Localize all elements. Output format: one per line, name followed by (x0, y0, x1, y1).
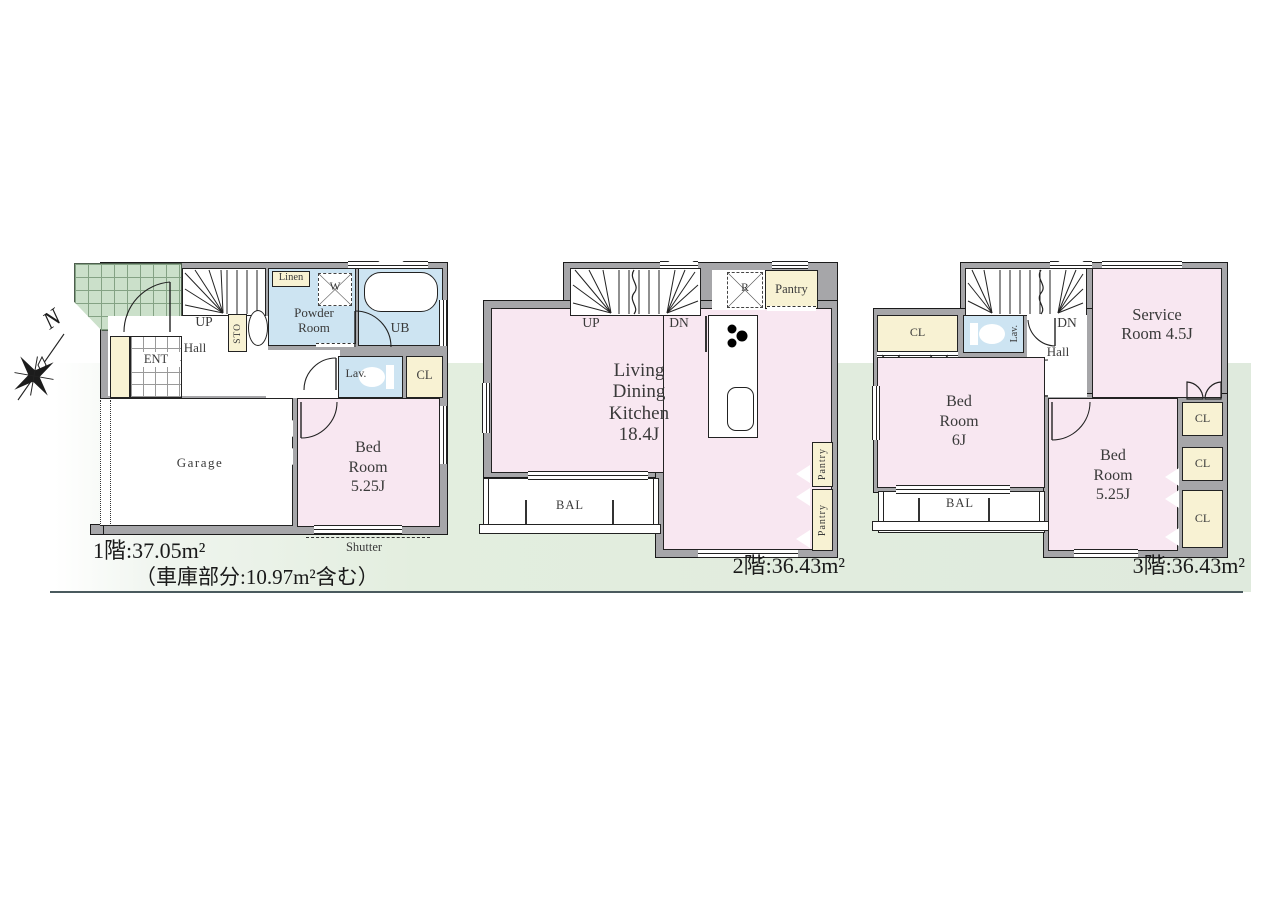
label-service-room: Service Room 4.5J (1114, 306, 1200, 344)
label-dn-f2: DN (663, 315, 695, 331)
double-casement-icon (1184, 374, 1224, 400)
bifold-door-icon (1163, 466, 1181, 488)
label-up-f2: UP (575, 315, 607, 331)
label-refrigerator: R (727, 282, 763, 296)
label-bal-f3: BAL (930, 496, 990, 511)
vent-triangle-icon (278, 446, 295, 467)
label-cl-f1: CL (406, 368, 443, 383)
window (439, 406, 447, 464)
label-sto-text: STO (233, 323, 243, 344)
label-pantry-side-lower: Pantry (817, 504, 828, 536)
kitchen-sink-icon (727, 387, 754, 431)
balcony-divider (612, 500, 614, 524)
label-cl2-f3: CL (1182, 456, 1223, 470)
label-bedroom-525j: Bed Room 5.25J (1087, 446, 1139, 505)
vent-hood-icon (666, 251, 696, 264)
label-washer: W (318, 281, 352, 295)
window (1102, 261, 1182, 269)
label-bal-f2: BAL (540, 498, 600, 513)
window (896, 485, 1010, 494)
vent-hood-icon (776, 249, 806, 262)
vent-triangle-icon (278, 418, 295, 439)
site-baseline (50, 591, 1243, 593)
label-pantry-side-lower-box: Pantry (812, 489, 833, 551)
label-pantry-top: Pantry (765, 282, 818, 297)
balcony-divider (525, 500, 527, 524)
label-up-f1: UP (188, 314, 220, 330)
label-bedroom-6j: Bed Room 6J (933, 392, 985, 451)
label-hall-f1: Hall (174, 340, 216, 356)
garage-door-dotted-line (110, 400, 112, 524)
stairs-icon (571, 269, 700, 315)
label-lav-f1: Lav. (339, 366, 373, 380)
toilet-icon-f3 (968, 320, 1008, 348)
stairs-icon (966, 269, 1086, 315)
vent-hood-icon (1056, 251, 1086, 264)
balcony-f2-parapet (479, 524, 661, 534)
ub-door-arc-icon (352, 308, 394, 348)
window (314, 525, 402, 534)
shoe-cabinet (110, 336, 130, 398)
hall-door-arc-icon (1028, 316, 1058, 350)
lav-door-arc-icon (304, 356, 338, 392)
bifold-door-icon (794, 528, 812, 550)
floor3-caption: 3階:36.43m² (1040, 553, 1245, 579)
entrance-door-arc-icon (118, 276, 180, 334)
label-lav-f3: Lav. (1009, 325, 1020, 342)
label-ldk: Living Dining Kitchen 18.4J (593, 360, 685, 446)
label-pantry-side-upper-box: Pantry (812, 442, 833, 487)
label-ent: ENT (132, 352, 180, 367)
balcony-divider (918, 498, 920, 521)
label-bedroom-f1: Bed Room 5.25J (342, 438, 394, 497)
vent-hood-icon (376, 251, 406, 264)
window (439, 300, 447, 346)
stairs-icon (183, 269, 265, 315)
window (772, 261, 808, 269)
label-linen: Linen (272, 272, 310, 285)
garage-door-dotted-line (100, 400, 102, 524)
floor1-caption-line1: 1階:37.05m² (93, 538, 433, 564)
bifold-door-icon (794, 463, 812, 485)
window (528, 471, 648, 480)
label-powder-room: Powder Room (282, 305, 346, 336)
stove-icon (723, 320, 753, 352)
washbasin-icon (248, 310, 268, 346)
pantry-sliding-door (767, 306, 816, 311)
label-cl3-f3: CL (1182, 511, 1223, 525)
label-pantry-side-upper: Pantry (817, 448, 828, 480)
compass-n-label: N (37, 303, 67, 335)
kitchen-halfwall (705, 316, 707, 352)
window (872, 386, 880, 440)
floor1-caption-line2: （車庫部分:10.97m²含む） (93, 564, 433, 590)
window (482, 383, 490, 433)
bedroom-door-arc-icon (299, 400, 337, 440)
floor1-caption: 1階:37.05m² （車庫部分:10.97m²含む） (93, 538, 433, 590)
bifold-door-icon (1163, 488, 1181, 510)
label-lav-f3-box: Lav. (1006, 317, 1022, 351)
bifold-door-icon (794, 486, 812, 508)
label-sto: STO (228, 314, 247, 352)
floor2-caption: 2階:36.43m² (640, 553, 845, 579)
balcony-f3-parapet (872, 521, 1051, 531)
bathtub-icon (364, 272, 438, 312)
bedroom525-door-arc-icon (1050, 400, 1090, 442)
balcony-door-icon (1022, 495, 1040, 517)
label-garage: Garage (158, 455, 242, 471)
label-cl-upper-f3: CL (877, 325, 958, 339)
label-cl1-f3: CL (1182, 411, 1223, 425)
bifold-door-icon (1163, 526, 1181, 548)
powder-sliding-door (316, 343, 356, 347)
